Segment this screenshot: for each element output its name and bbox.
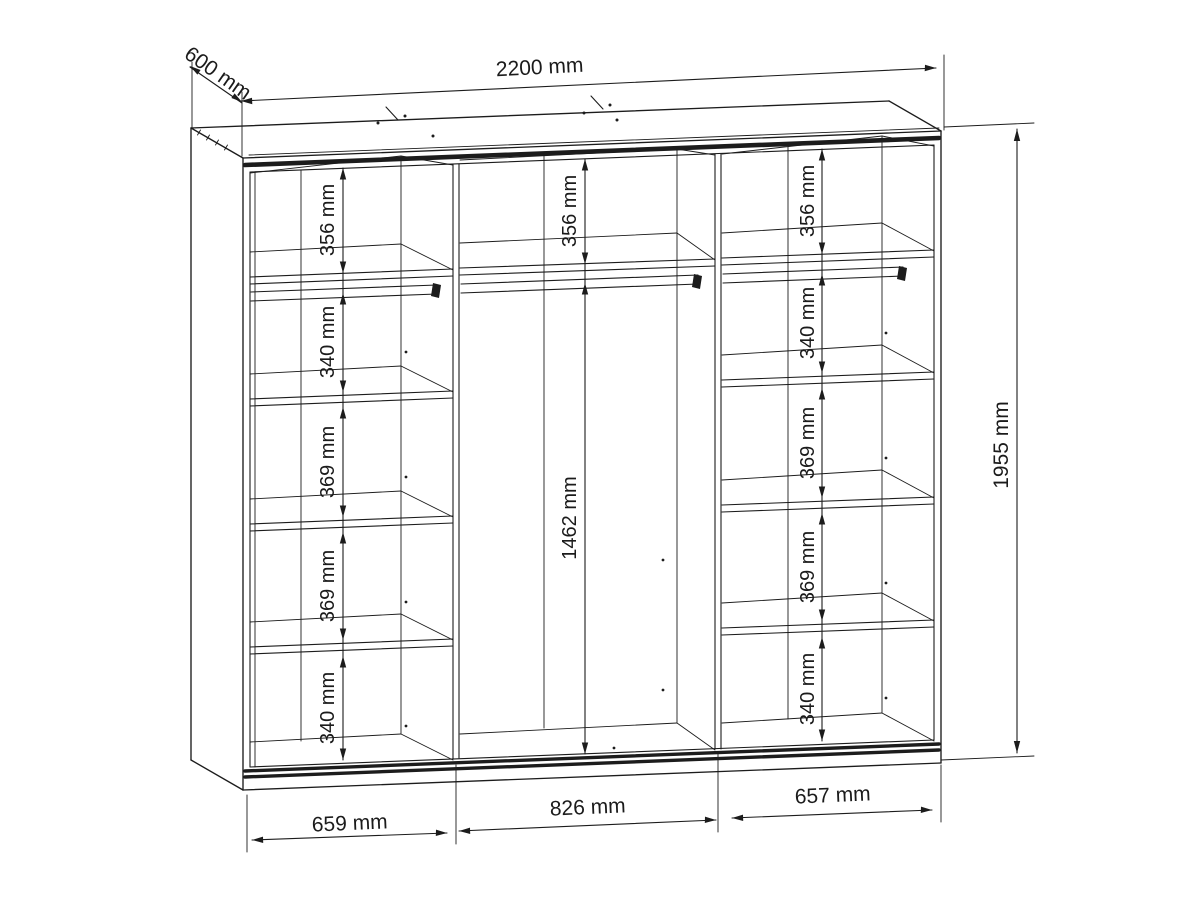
dim-height: 1955 mm — [941, 123, 1034, 760]
dim-label-right-5: 340 mm — [797, 653, 819, 725]
dim-label-right-3: 369 mm — [797, 407, 819, 479]
dim-label-middle-1: 356 mm — [559, 175, 581, 247]
middle-section-interior — [460, 149, 715, 750]
dim-middle-column: 356 mm 1462 mm — [559, 159, 588, 754]
dim-label-middle-2: 1462 mm — [559, 476, 581, 559]
dim-label-left-1: 356 mm — [317, 184, 339, 256]
dim-label-depth: 600 mm — [180, 42, 255, 104]
dim-label-section-width-3: 657 mm — [794, 782, 871, 808]
dim-label-left-4: 369 mm — [317, 550, 339, 622]
wardrobe-dimension-diagram: 2200 mm 600 mm 1955 mm 356 mm 340 mm 369… — [0, 0, 1200, 900]
dim-label-left-2: 340 mm — [317, 306, 339, 378]
dim-label-right-1: 356 mm — [797, 165, 819, 237]
dim-label-section-width-1: 659 mm — [311, 810, 388, 836]
dim-label-width: 2200 mm — [495, 54, 584, 82]
dim-label-height: 1955 mm — [990, 401, 1013, 489]
dim-right-column: 356 mm 340 mm 369 mm 369 mm 340 mm — [797, 149, 825, 741]
dim-label-right-2: 340 mm — [797, 287, 819, 359]
diagram-canvas: 2200 mm 600 mm 1955 mm 356 mm 340 mm 369… — [0, 0, 1200, 900]
dim-label-right-4: 369 mm — [797, 531, 819, 603]
dim-label-left-3: 369 mm — [317, 426, 339, 498]
left-section-interior — [250, 156, 453, 760]
dim-left-column: 356 mm 340 mm 369 mm 369 mm 340 mm — [317, 168, 346, 760]
dim-depth: 600 mm — [180, 42, 255, 128]
dim-label-left-5: 340 mm — [317, 672, 339, 744]
right-section-interior — [722, 136, 934, 741]
dim-label-section-width-2: 826 mm — [549, 794, 626, 820]
